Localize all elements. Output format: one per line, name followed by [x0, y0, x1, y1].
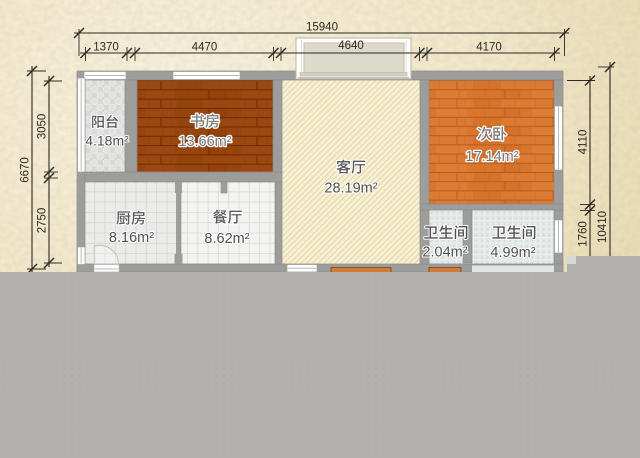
svg-text:8.62m²: 8.62m²: [204, 231, 249, 247]
svg-text:8.16m²: 8.16m²: [109, 230, 154, 246]
svg-text:4.18m²: 4.18m²: [85, 132, 129, 148]
svg-text:4110: 4110: [578, 130, 590, 155]
svg-text:13.66m²: 13.66m²: [178, 134, 231, 150]
svg-text:4470: 4470: [192, 42, 218, 54]
svg-text:2750: 2750: [37, 208, 49, 234]
svg-text:10410: 10410: [597, 211, 609, 243]
svg-text:4640: 4640: [338, 40, 364, 52]
svg-text:1760: 1760: [578, 221, 590, 247]
svg-text:4170: 4170: [476, 42, 502, 54]
svg-text:2.04m²: 2.04m²: [422, 245, 467, 261]
svg-text:15940: 15940: [306, 22, 338, 34]
svg-text:3050: 3050: [37, 114, 49, 140]
svg-text:1370: 1370: [93, 42, 119, 54]
svg-text:28.19m²: 28.19m²: [324, 181, 377, 197]
svg-text:17.14m²: 17.14m²: [465, 149, 518, 165]
svg-text:4.99m²: 4.99m²: [490, 245, 535, 261]
svg-text:6670: 6670: [20, 157, 32, 183]
